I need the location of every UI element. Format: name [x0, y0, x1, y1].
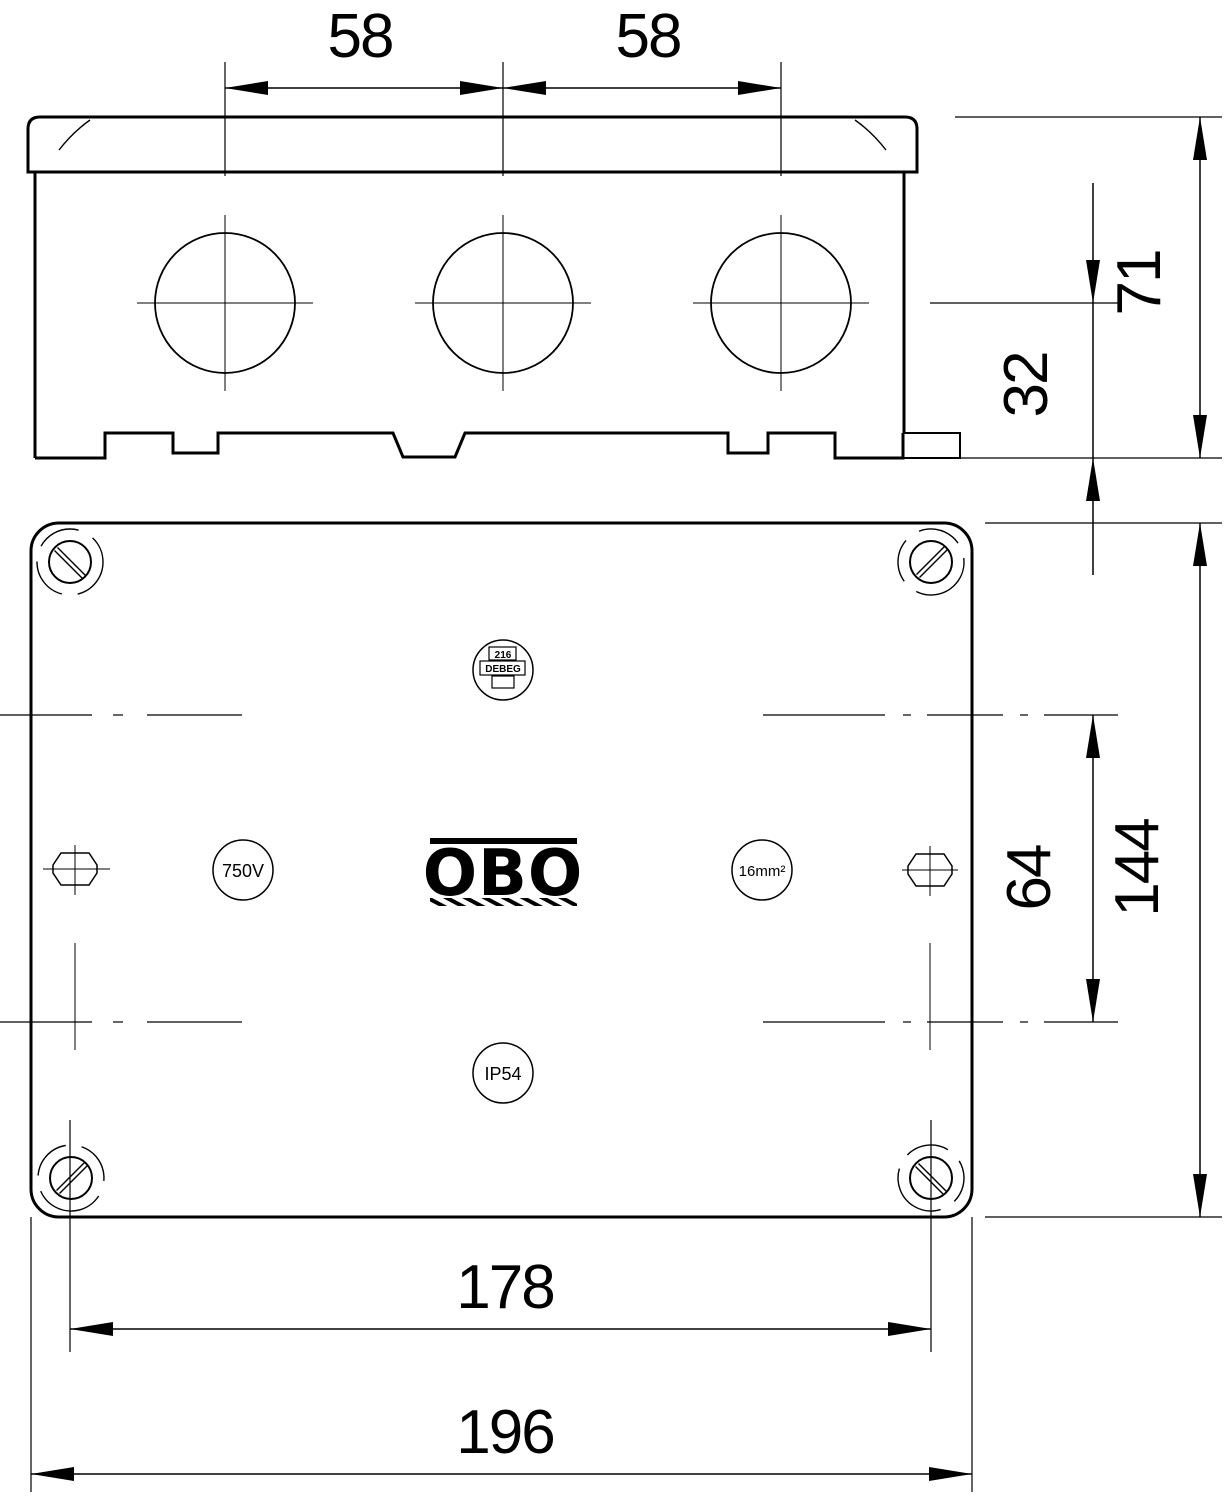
obo-logo-hatched-bar: [430, 898, 577, 906]
dim-71-label: 71: [1105, 251, 1174, 316]
voltage-label: 750V: [222, 861, 264, 881]
obo-logo: OBO: [423, 837, 584, 911]
sheet-background: [0, 0, 1224, 1500]
dim-32-label: 32: [992, 353, 1061, 418]
stamp-name-label: DEBEG: [485, 664, 521, 675]
dim-58-right-label: 58: [616, 2, 681, 71]
dim-58-left-label: 58: [328, 2, 393, 71]
junction-box-drawing: 58 58 71 32: [0, 0, 1224, 1500]
dim-144-label: 144: [1103, 819, 1172, 917]
conductor-label: 16mm²: [739, 863, 786, 880]
technical-drawing-sheet: 58 58 71 32: [0, 0, 1224, 1500]
dim-178-label: 178: [456, 1253, 553, 1322]
stamp-number-label: 216: [495, 650, 512, 661]
dim-196-label: 196: [456, 1398, 553, 1467]
ip-rating-label: IP54: [484, 1064, 521, 1084]
dim-64-label: 64: [995, 845, 1064, 910]
